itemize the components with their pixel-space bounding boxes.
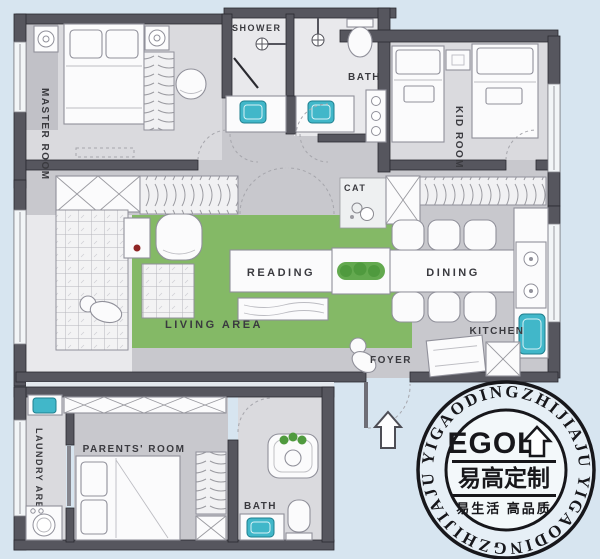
side-table [124,218,150,258]
toilet-icon [347,19,373,57]
stamp-divider [452,460,556,463]
stamp-brand-cn: 易高定制 [458,465,550,491]
toilet-icon [286,500,312,540]
wood-bench [238,298,328,320]
chair [428,220,460,250]
parents-wardrobe [196,452,226,514]
chair [392,292,424,322]
entrance-door-leaf [364,382,368,428]
sofa [56,210,128,350]
bathtub-icon [268,433,318,479]
top-cabinet-row [64,397,226,413]
chair [464,220,496,250]
stamp-slogan-cn: 易生活 高品质 [456,501,552,516]
floor-plan-svg: MASTER ROOM SHOWER [0,0,600,559]
dining-wardrobe [420,177,546,205]
kid-bed [472,44,538,138]
chair [464,292,496,322]
kid-room-label: KID ROOM [453,106,464,169]
stove-icon [516,242,546,308]
kid-bed [392,46,444,142]
plant-icon [354,263,367,276]
living-area-label: LIVING AREA [165,319,263,331]
nightstand [145,26,169,50]
window [548,84,560,172]
plant-icon [340,265,352,277]
storage-cabinet [56,176,140,212]
red-dot [134,245,141,252]
storage-cabinet [386,176,420,224]
chair [392,220,424,250]
window [14,420,26,516]
laundry-label: LAUNDRY AREA [34,428,44,517]
parents-room-label: PARENTS' ROOM [83,444,186,455]
foyer-label: FOYER [370,355,412,366]
round-chair [176,69,206,99]
nightstand [34,26,58,52]
stamp-divider [452,494,556,497]
washer-icon [26,506,62,540]
plant-icon [368,265,380,277]
plant-icon [280,436,289,445]
parents-bed [76,456,180,540]
table-planter [332,248,390,294]
lamp-icon [149,30,165,46]
entrance-arrow-icon [375,412,401,448]
ottoman [142,264,194,318]
plant-icon [298,436,307,445]
armchair [156,214,202,260]
window [14,210,26,344]
vanity-counter [240,514,284,540]
floor-plan-page: MASTER ROOM SHOWER [0,0,600,559]
bath-top-label: BATH [348,72,381,83]
hall-wardrobe [140,176,238,214]
master-room-label: MASTER ROOM [39,88,50,181]
sliding-door [67,446,71,506]
cat-corner: CAT [340,178,386,228]
nightstand [446,50,470,70]
dining-label: DINING [426,267,480,279]
window [548,224,560,322]
double-bed [64,24,144,124]
bath-bottom-label: BATH [244,501,277,512]
reading-label: READING [247,267,315,279]
lamp-icon [38,31,54,47]
storage-cabinet [486,342,520,376]
plant-icon [289,433,298,442]
shower-label: SHOWER [232,23,282,33]
sink-icon [240,101,266,123]
bath-shelf [366,90,386,142]
laundry-sink [28,395,62,415]
master-wardrobe [144,52,174,130]
window [14,42,26,112]
watermark-stamp: YIGAODINGZHIJIAJU YIGAODINGZHIJIAJU EGOL… [418,382,595,559]
chair [428,292,460,322]
stamp-logo-text: EGOL [447,427,536,460]
sink-icon [247,518,274,537]
cat-label: CAT [344,183,366,193]
shoe-cabinet [426,335,485,377]
storage-cabinet [196,516,226,540]
